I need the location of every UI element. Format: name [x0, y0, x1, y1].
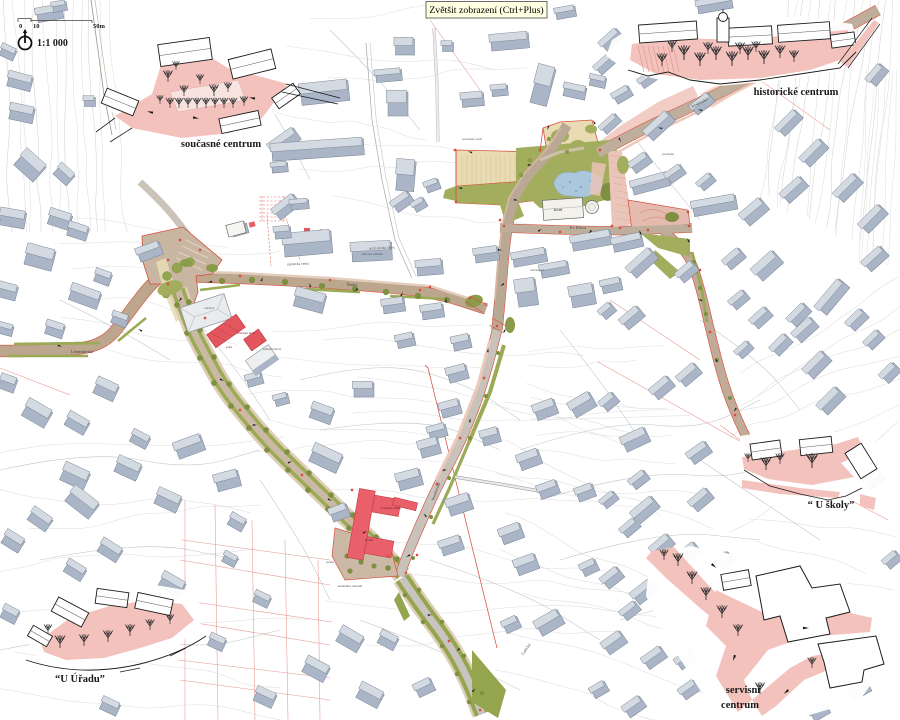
svg-text:Ke Křovu: Ke Křovu	[570, 225, 588, 230]
svg-text:kostel: kostel	[554, 208, 563, 212]
svg-text:10: 10	[33, 23, 40, 30]
svg-text:odborné učiliště: odborné učiliště	[361, 252, 383, 256]
svg-text:historické centrum: historické centrum	[754, 87, 839, 98]
svg-text:servisní: servisní	[726, 685, 762, 696]
svg-text:0: 0	[19, 23, 22, 30]
svg-text:technické služby: technické služby	[380, 506, 402, 510]
svg-text:spořka: spořka	[326, 560, 335, 564]
svg-text:“U Úřadu”: “U Úřadu”	[55, 673, 105, 685]
svg-text:Zvětšit zobrazení (Ctrl+Plus): Zvětšit zobrazení (Ctrl+Plus)	[429, 5, 543, 16]
svg-text:obchod: obchod	[204, 306, 214, 310]
svg-text:1:1 000: 1:1 000	[37, 38, 68, 49]
svg-text:současné centrum: současné centrum	[181, 139, 261, 150]
svg-text:50m: 50m	[93, 23, 106, 30]
svg-text:hostel: hostel	[365, 538, 373, 542]
svg-text:základní škola: základní škola	[263, 347, 282, 351]
svg-text:Lobendavská: Lobendavská	[71, 349, 93, 354]
svg-text:prodejna: prodejna	[662, 152, 674, 156]
svg-text:centrum: centrum	[721, 700, 759, 711]
svg-text:městský úřad: městský úřad	[238, 331, 255, 335]
svg-text:zámecká cesta: zámecká cesta	[287, 262, 309, 267]
svg-text:Školní: Školní	[346, 282, 358, 287]
svg-text:“ U školy”: “ U školy”	[808, 500, 855, 511]
svg-text:komunitní centrum: komunitní centrum	[338, 584, 363, 588]
svg-text:pošta: pošta	[226, 345, 233, 349]
svg-text:restaurace: restaurace	[530, 268, 544, 272]
svg-text:současný areál: současný areál	[462, 137, 482, 141]
